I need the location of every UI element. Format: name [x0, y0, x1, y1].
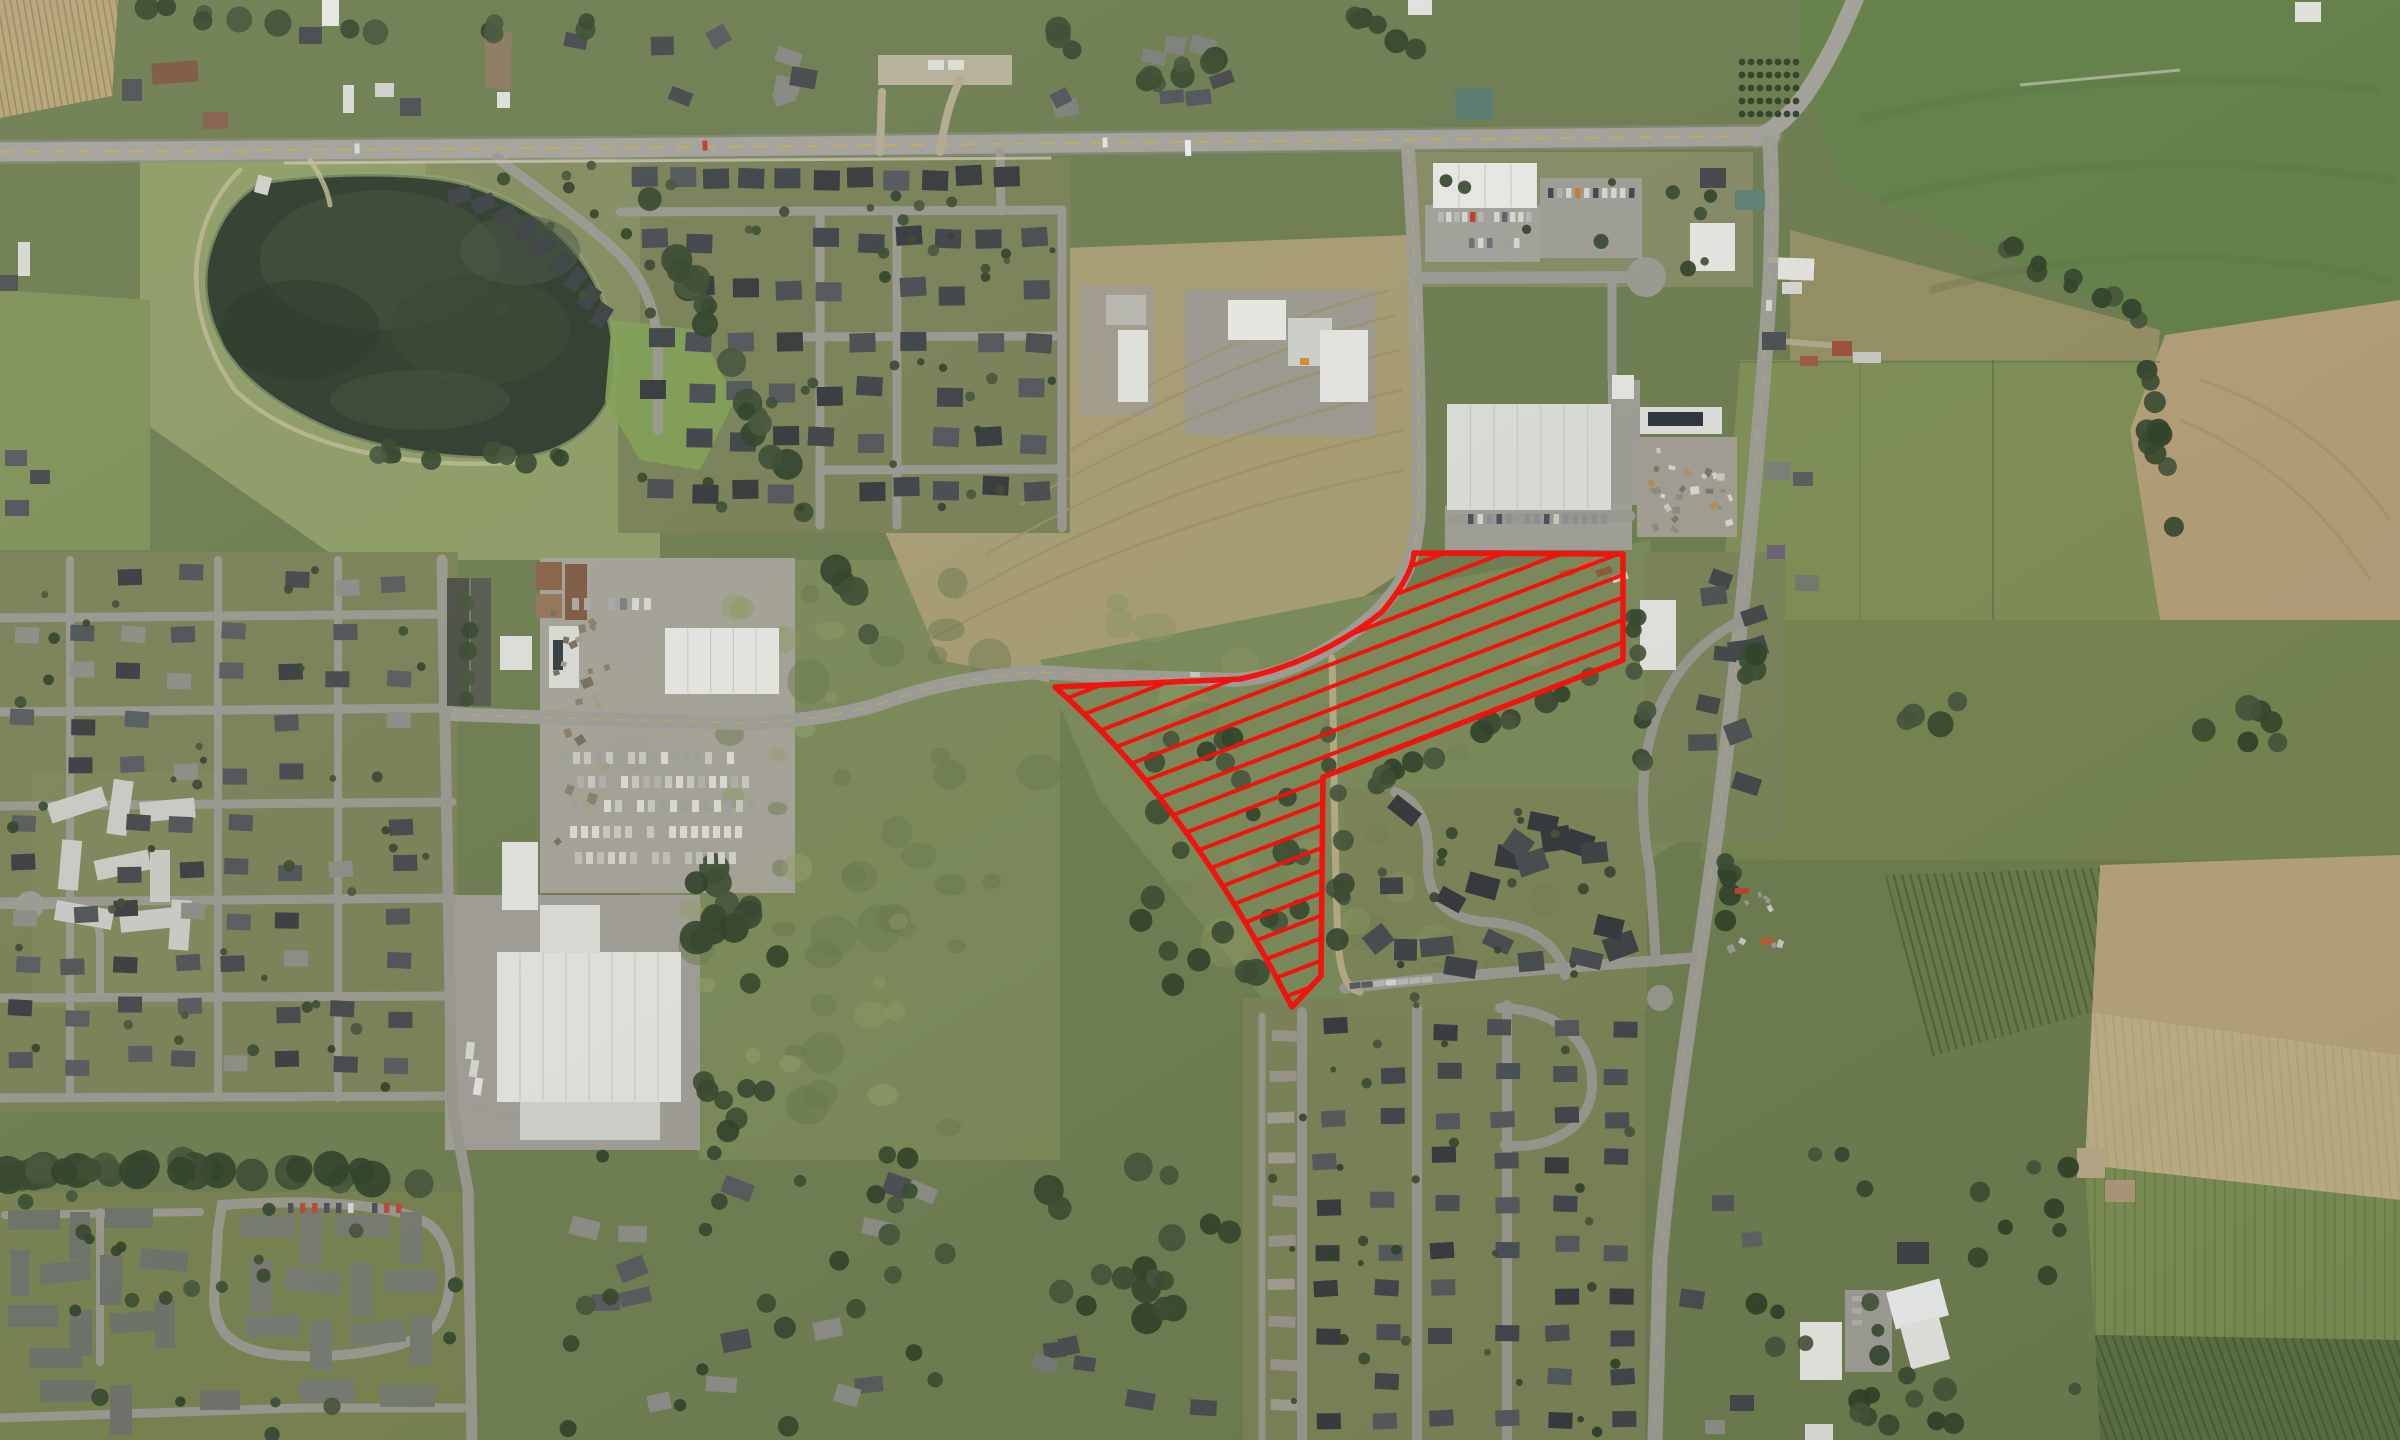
satellite-canvas	[0, 0, 2400, 1440]
satellite-imagery-canvas[interactable]	[0, 0, 2400, 1440]
satellite-map-view[interactable]	[0, 0, 2400, 1440]
lighting-overlay	[0, 0, 2400, 1440]
